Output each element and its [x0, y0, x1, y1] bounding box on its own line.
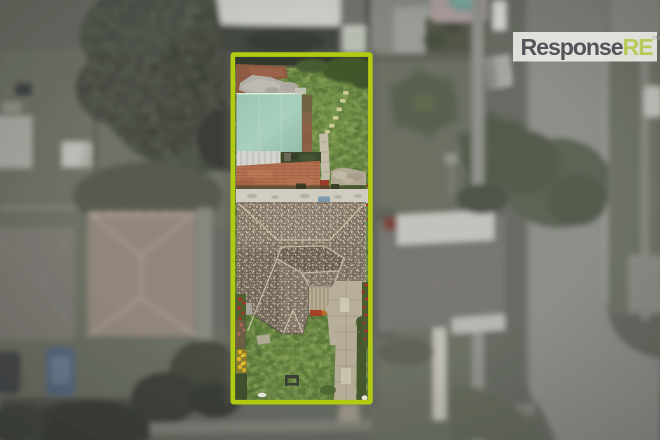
svg-text:TM: TM	[652, 36, 660, 42]
svg-text:ResponseRE: ResponseRE	[521, 34, 654, 60]
